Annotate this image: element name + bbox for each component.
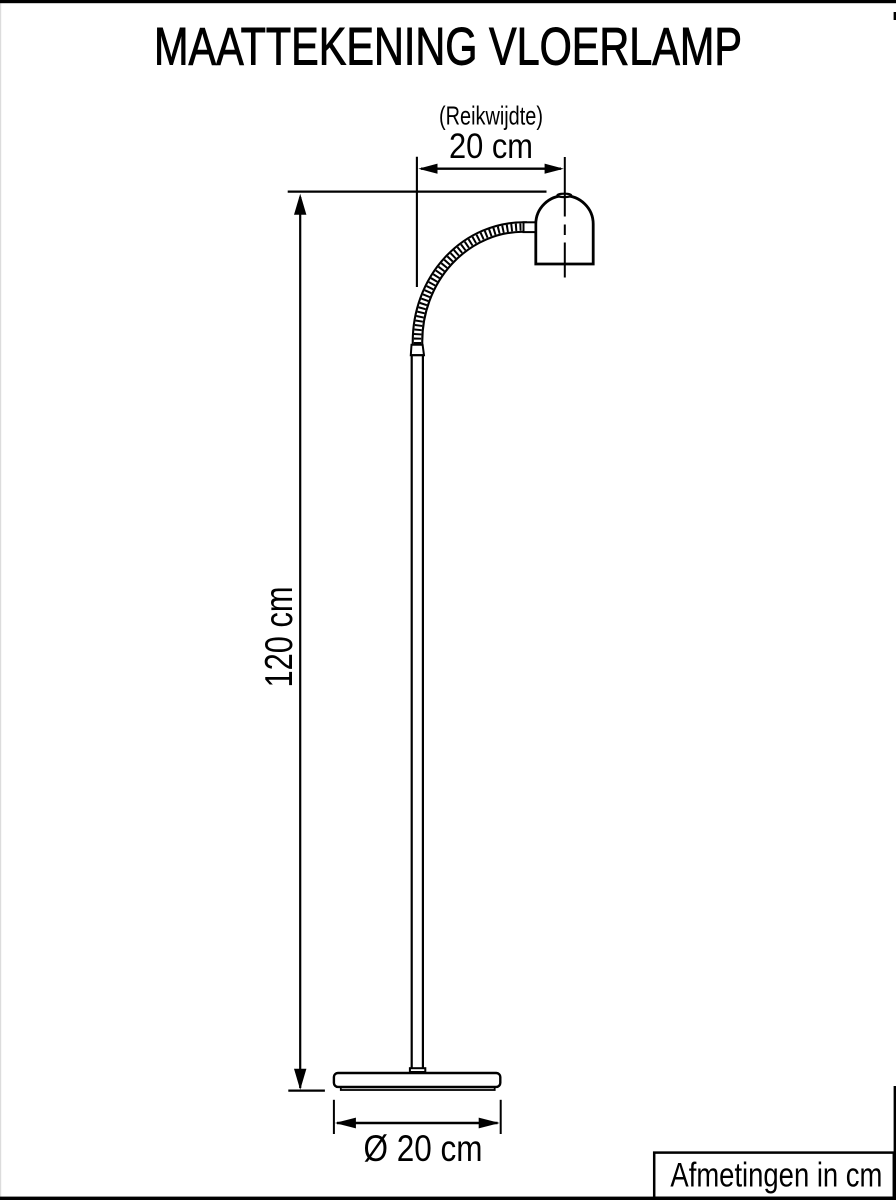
svg-text:Ø 20 cm: Ø 20 cm	[364, 1128, 483, 1169]
svg-text:MAATTEKENING VLOERLAMP: MAATTEKENING VLOERLAMP	[154, 18, 742, 77]
svg-text:Afmetingen in cm: Afmetingen in cm	[670, 1157, 882, 1195]
svg-text:120 cm: 120 cm	[258, 587, 301, 688]
svg-text:20 cm: 20 cm	[449, 127, 533, 166]
svg-text:(Reikwijdte): (Reikwijdte)	[439, 102, 543, 130]
